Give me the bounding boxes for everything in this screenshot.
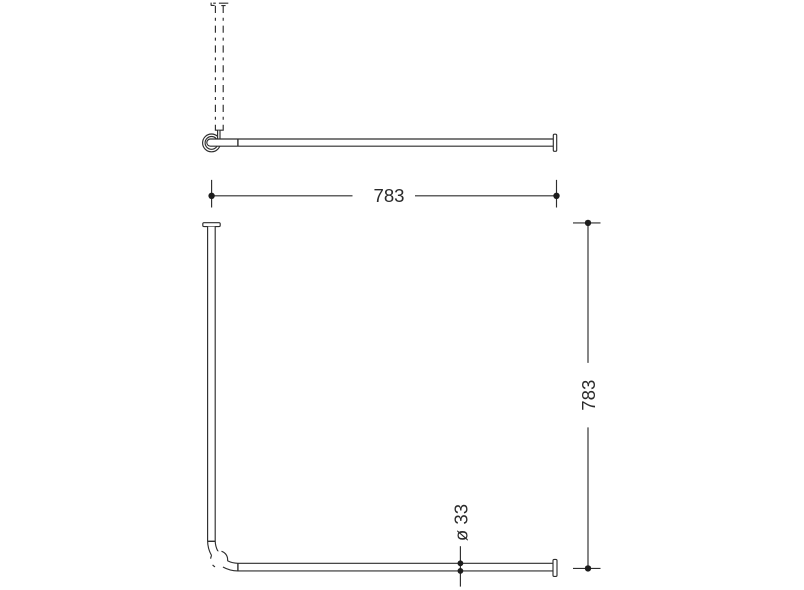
svg-text:783: 783 <box>578 380 599 411</box>
svg-text:783: 783 <box>373 185 404 206</box>
svg-text:ø 33: ø 33 <box>450 504 471 541</box>
